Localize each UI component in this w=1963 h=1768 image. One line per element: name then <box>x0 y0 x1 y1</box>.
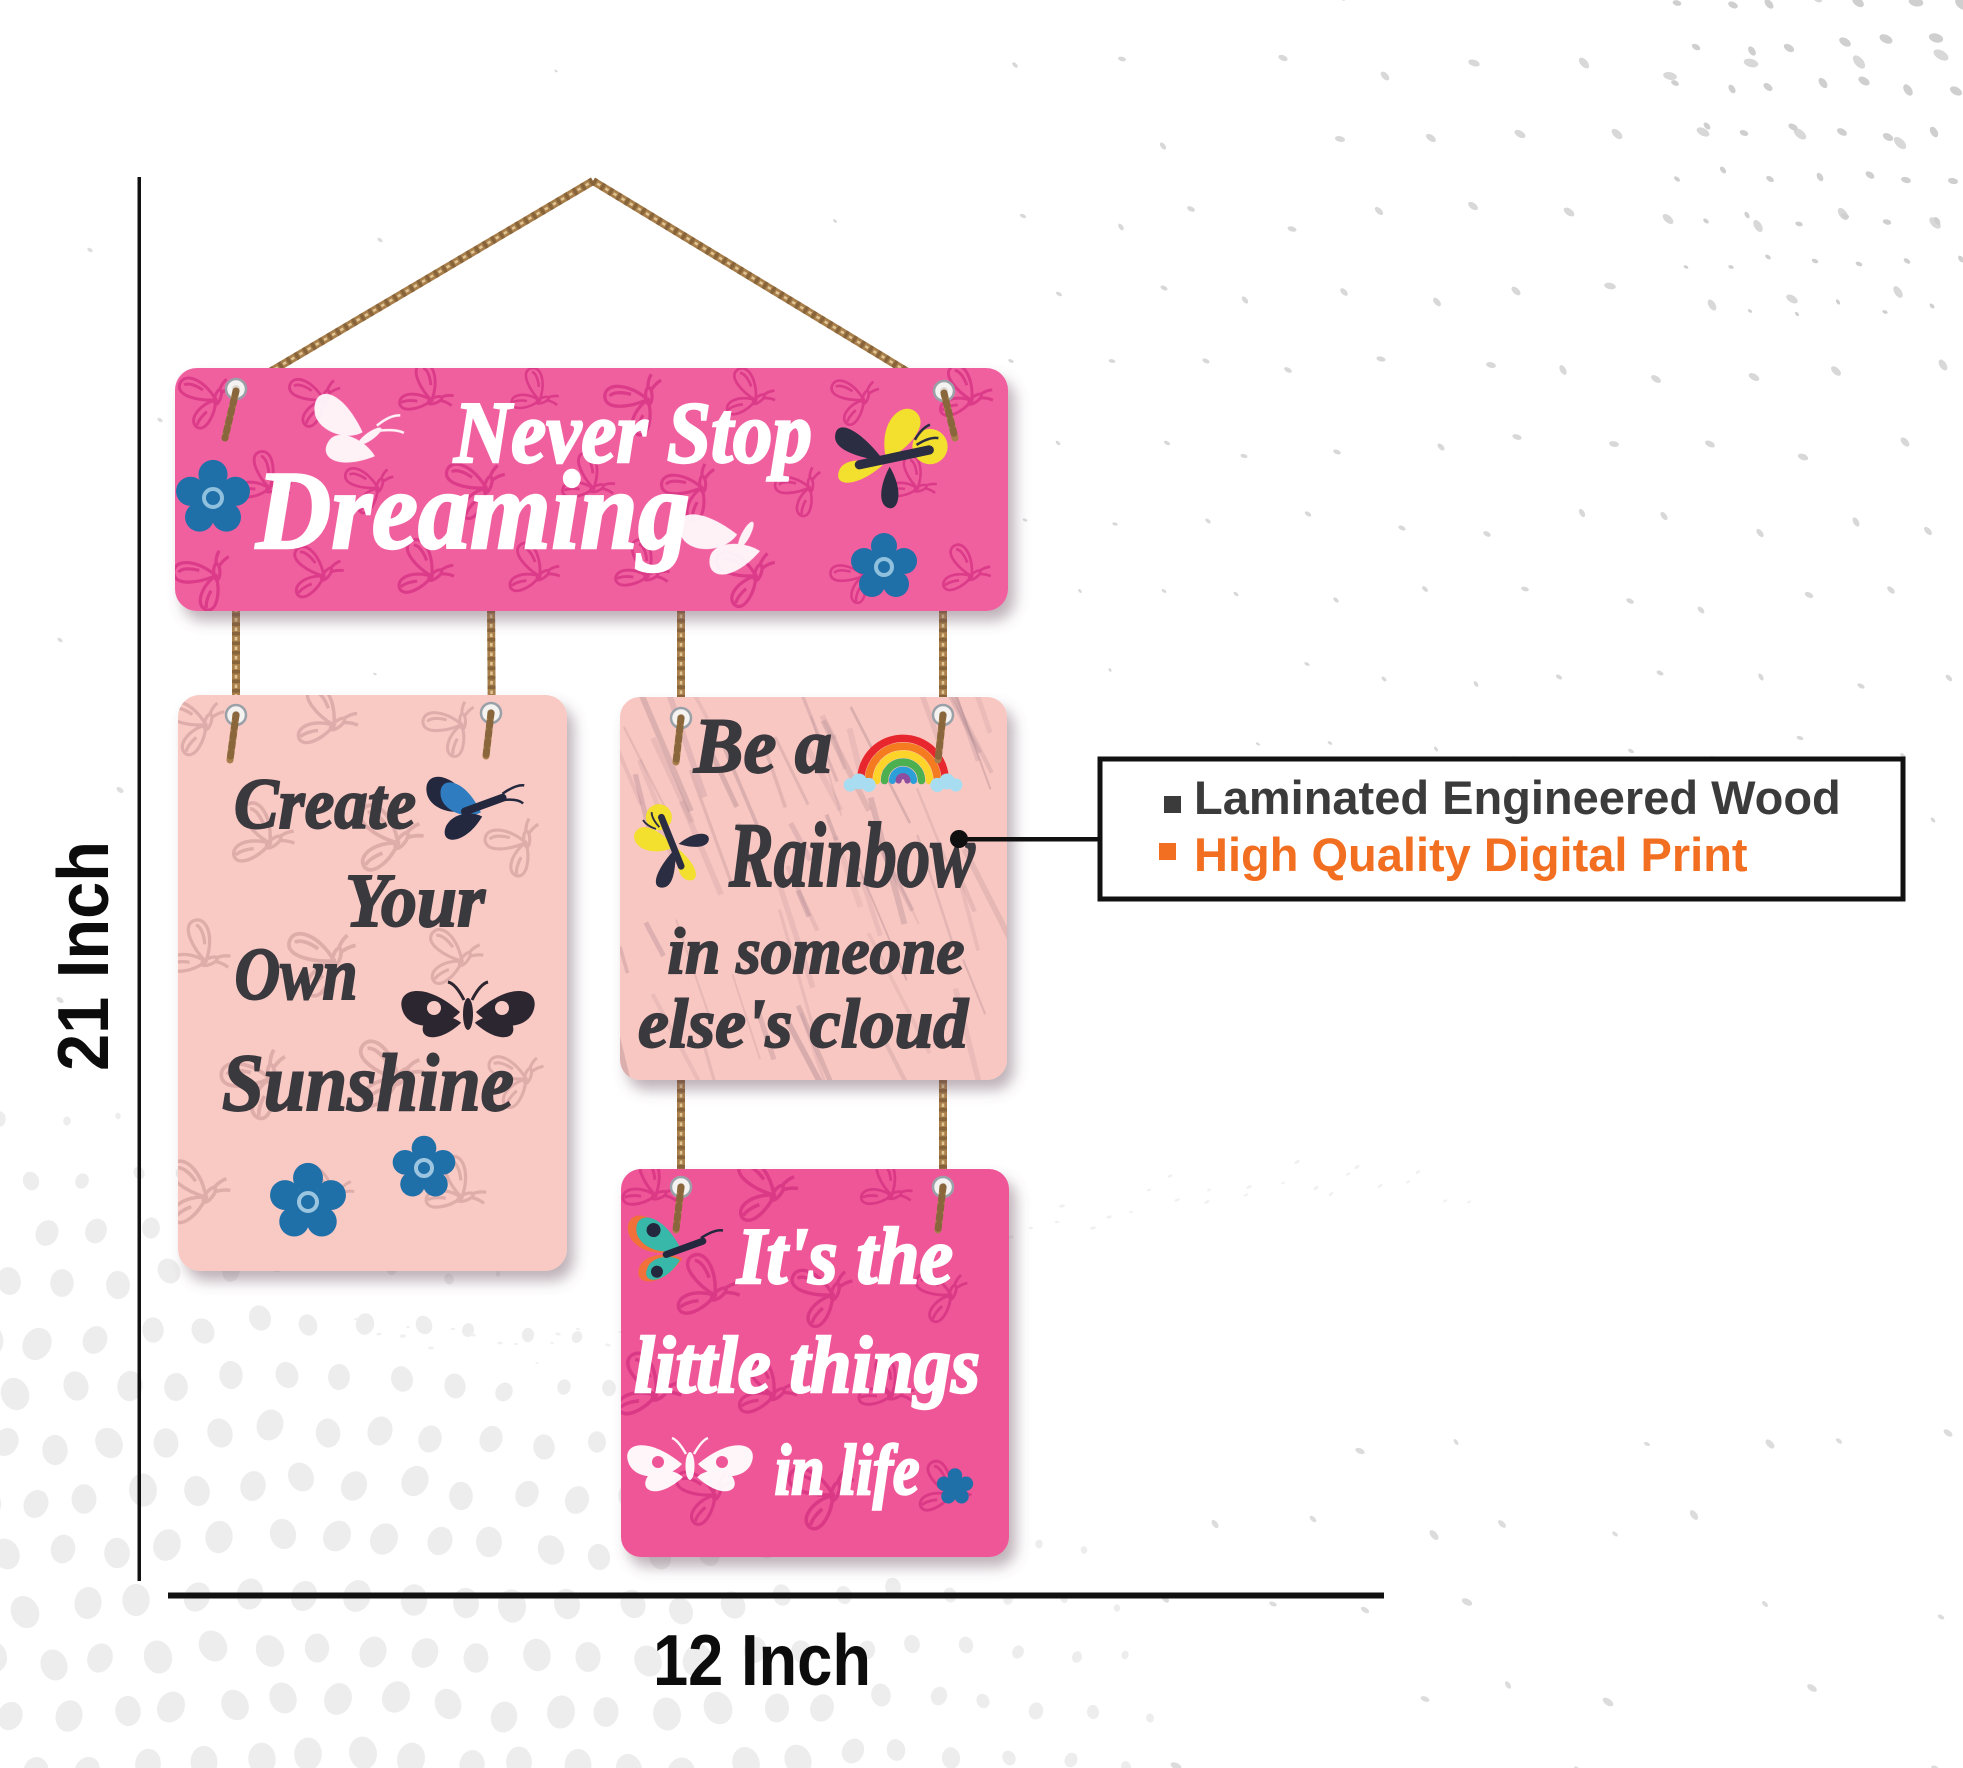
svg-text:21 Inch: 21 Inch <box>44 841 124 1071</box>
svg-text:in life: in life <box>775 1430 920 1510</box>
svg-text:Sunshine: Sunshine <box>222 1037 514 1128</box>
svg-text:Own: Own <box>235 934 358 1016</box>
svg-text:Dreaming: Dreaming <box>255 449 690 573</box>
svg-text:Create: Create <box>234 764 416 844</box>
svg-text:12 Inch: 12 Inch <box>653 1621 871 1701</box>
svg-text:Laminated Engineered Wood: Laminated Engineered Wood <box>1194 771 1841 824</box>
svg-text:little things: little things <box>634 1322 980 1410</box>
svg-text:else's cloud: else's cloud <box>638 986 969 1063</box>
svg-text:Be a: Be a <box>693 702 832 789</box>
svg-text:in someone: in someone <box>668 915 965 988</box>
svg-text:Your: Your <box>345 859 486 943</box>
svg-text:Rainbow: Rainbow <box>728 804 975 906</box>
svg-text:It's the: It's the <box>736 1213 953 1301</box>
svg-text:High Quality Digital Print: High Quality Digital Print <box>1194 828 1748 881</box>
